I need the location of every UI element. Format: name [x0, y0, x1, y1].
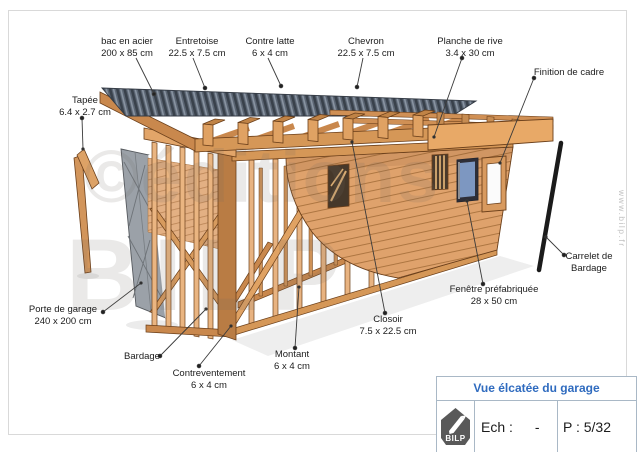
scale-label: Ech : — [481, 419, 513, 435]
title-block-row: BILP Ech : - P : 5/32 — [437, 401, 636, 452]
bilp-logo-text: BILP — [437, 434, 474, 443]
page-cell: P : 5/32 — [558, 401, 636, 452]
title-block: Vue élcatée du garage BILP Ech : - P : 5… — [436, 376, 637, 452]
label-bardage: Bardage — [124, 351, 160, 363]
cladding-batten-bar — [539, 143, 561, 270]
drawing-title: Vue élcatée du garage — [437, 377, 636, 401]
label-chevron: Chevron22.5 x 7.5 cm — [337, 36, 394, 59]
label-fenetre-prefabriquee: Fenêtre préfabriquée28 x 50 cm — [450, 284, 539, 307]
vent-slats — [432, 154, 448, 190]
scale-value: - — [535, 419, 540, 435]
corner-post — [218, 148, 236, 340]
page-canvas: ©éditions BILP www.bilp.fr bac en acier2… — [0, 0, 640, 452]
label-tapee: Tapée6.4 x 2.7 cm — [59, 95, 111, 118]
label-contreventement: Contreventement6 x 4 cm — [173, 368, 246, 391]
label-porte-de-garage: Porte de garage240 x 200 cm — [29, 304, 97, 327]
website-url-vertical: www.bilp.fr — [617, 190, 627, 248]
label-contre-latte: Contre latte6 x 4 cm — [245, 36, 294, 59]
label-carrelet-de-bardage: Carrelet deBardage — [566, 251, 613, 274]
label-closoir: Closoir7.5 x 22.5 cm — [359, 314, 416, 337]
tapee-strips — [74, 149, 99, 273]
label-bac-en-acier: bac en acier200 x 85 cm — [101, 36, 153, 59]
bilp-logo: BILP — [437, 401, 475, 452]
prefab-window — [457, 158, 478, 202]
fascia-board — [428, 119, 553, 150]
frame-finishing — [482, 156, 506, 212]
label-entretoise: Entretoise22.5 x 7.5 cm — [168, 36, 225, 59]
label-planche-de-rive: Planche de rive3.4 x 30 cm — [437, 36, 502, 59]
label-finition-de-cadre: Finition de cadre — [534, 67, 604, 79]
rough-opening — [328, 164, 349, 208]
label-montant: Montant6 x 4 cm — [274, 349, 310, 372]
scale-cell: Ech : - — [475, 401, 558, 452]
